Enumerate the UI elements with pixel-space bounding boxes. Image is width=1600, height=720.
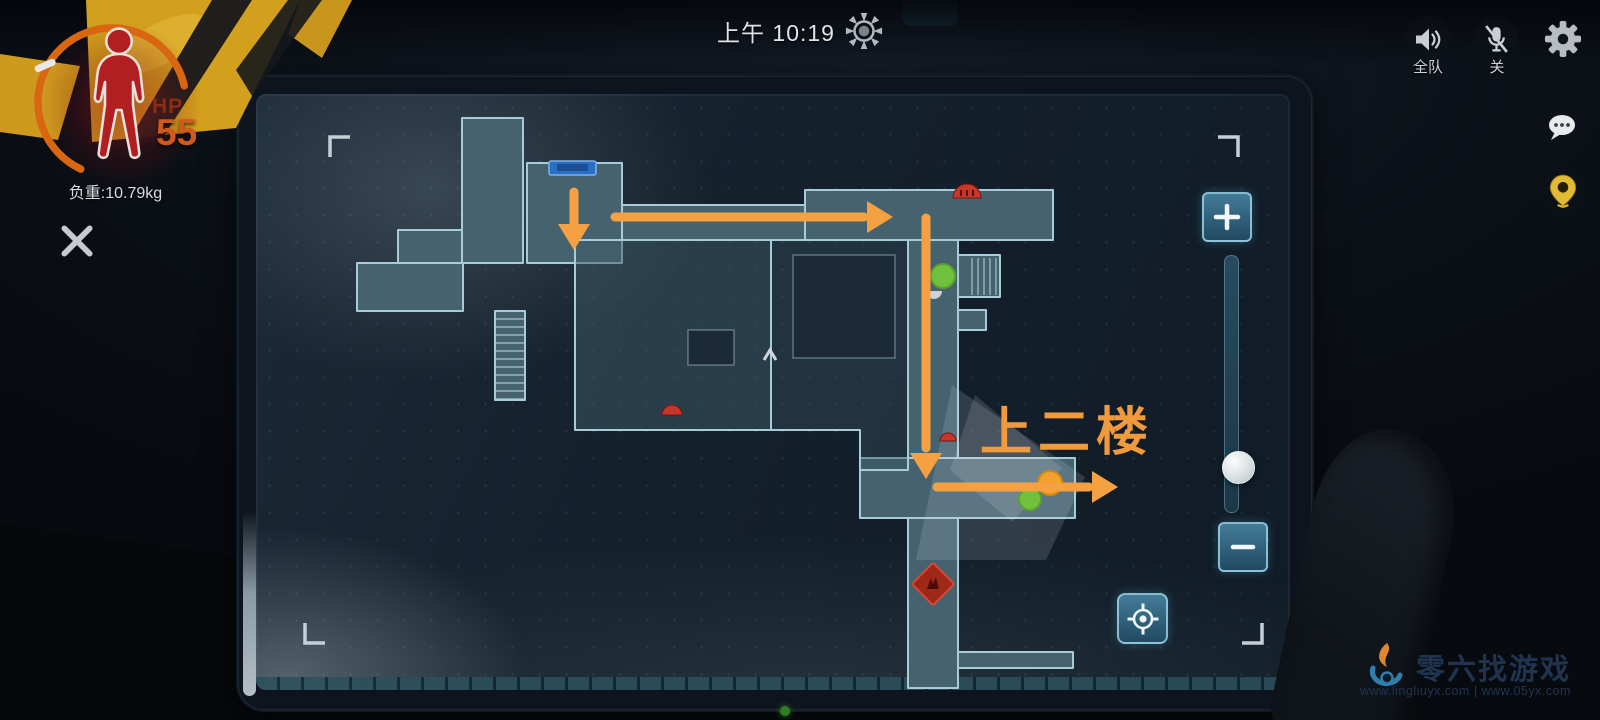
plus-icon [1212,202,1242,232]
close-map-button[interactable] [54,218,100,264]
gear-icon [1544,20,1582,58]
chat-button[interactable] [1539,104,1585,150]
door-marker-inner [557,164,588,171]
tablet-edge-highlight [243,510,256,696]
sun-daytime-icon [845,12,883,50]
tablet-led-indicator [780,706,790,716]
voice-channel-label: 全队 [1398,56,1458,77]
map-room [495,311,525,400]
close-icon [54,218,100,264]
hp-body-figure [80,26,158,166]
hp-value: 55 [156,112,197,154]
map-room [462,118,523,263]
time-cluster: 上午 10:19 [690,12,910,50]
map-room [398,230,462,263]
map-room [357,263,463,311]
map-unexplored-room [688,330,734,365]
speaker-icon [1413,26,1443,53]
game-time: 上午 10:19 [717,14,835,48]
map-room [958,255,1000,297]
zoom-out-button[interactable] [1218,522,1268,572]
chat-bubble-icon [1545,112,1579,142]
game-screen: 上二楼 [0,0,1600,720]
watermark-title: 零六找游戏 [1416,646,1571,688]
map-room [958,310,986,330]
map-room [575,240,771,430]
route-annotation: 上二楼 [980,404,1154,462]
zoom-slider-knob[interactable] [1222,451,1255,484]
crosshair-target-icon [1126,602,1160,636]
minus-icon [1228,532,1258,562]
mic-state-label: 关 [1467,56,1527,77]
map-room [958,652,1073,668]
settings-button[interactable] [1540,16,1586,62]
route-arrow-head [1092,471,1118,503]
location-pin-icon [1549,174,1577,208]
watermark: 零六找游戏 www.lingliuyx.com | www.05yx.com [1352,634,1600,718]
carry-weight-text: 负重:10.79kg [33,179,198,203]
location-ping-button[interactable] [1540,168,1586,214]
mic-muted-icon [1482,24,1511,55]
teammate-dot [931,264,955,288]
zoom-in-button[interactable] [1202,192,1252,242]
watermark-urls: www.lingliuyx.com | www.05yx.com [1360,684,1571,698]
map-unexplored-room [793,255,895,358]
recenter-button[interactable] [1117,593,1168,644]
